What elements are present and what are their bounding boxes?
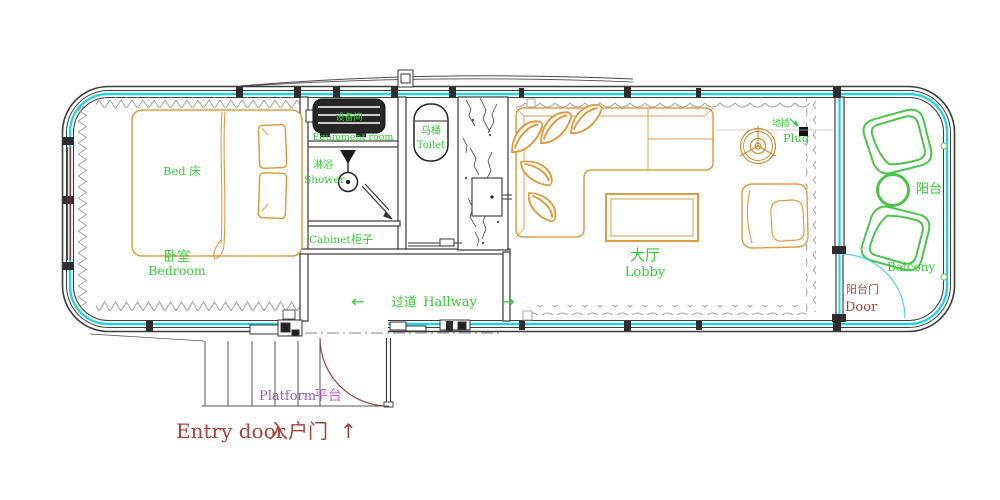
ceiling-fan: [740, 126, 776, 164]
balcony-table: [878, 175, 909, 206]
wall-anchor-dot: [941, 143, 947, 149]
armchair: [742, 184, 808, 248]
bed: [132, 110, 302, 259]
label-bed: Bed 床: [163, 164, 201, 178]
label-entry-door-zh: 入户门: [268, 419, 328, 443]
label-equipment-zh: 设备间: [335, 111, 362, 123]
wall-shower-south: [308, 221, 400, 226]
label-cabinet-en: Cabinet: [309, 234, 351, 246]
coffee-table: [606, 194, 698, 241]
label-toilet-en: Toilet: [417, 140, 445, 151]
hallway-arrow-right: →: [501, 292, 514, 311]
label-bedroom-en: Bedroom: [148, 263, 206, 278]
label-lobby-zh: 大厅: [630, 246, 660, 264]
shower-door: [362, 184, 392, 219]
floor-plan-canvas: Bed 床 卧室 Bedroom 设备间 Equipment room 淋浴 S…: [0, 0, 1000, 500]
wall-anchor-dot: [941, 274, 947, 280]
label-plug-en: Plug: [783, 131, 810, 145]
floor-plan-drawing: Bed 床 卧室 Bedroom 设备间 Equipment room 淋浴 S…: [0, 0, 1000, 500]
entry-opening: [300, 314, 388, 334]
platform-deck: [90, 334, 389, 406]
hallway-arrow-left: ←: [351, 292, 364, 311]
label-plug-zh: 地插: [772, 117, 790, 129]
balcony-chair-top: [861, 107, 934, 177]
label-shower-en: Shower: [304, 174, 345, 186]
label-platform-zh: 平台: [314, 388, 342, 404]
label-balcony-door-en: Door: [845, 300, 878, 315]
wall-toilet-west: [398, 97, 406, 251]
toilet-sliding-door: [408, 239, 462, 246]
label-hallway-zh: 过道: [391, 294, 417, 309]
label-balcony-door-zh: 阳台门: [846, 282, 879, 296]
marble-wall: [458, 97, 508, 250]
label-shower-zh: 淋浴: [313, 158, 333, 171]
roof-vent: [398, 70, 413, 87]
roof-overhang-lines: [240, 76, 633, 86]
label-balcony-en: Balcony: [887, 260, 935, 274]
entry-door-arrow-up: ↑: [340, 419, 357, 443]
label-balcony-zh: 阳台: [916, 182, 942, 197]
label-platform-en: Platform: [259, 389, 316, 404]
label-equipment-en: Equipment room: [313, 132, 394, 143]
label-toilet-zh: 马桶: [421, 124, 441, 137]
label-lobby-en: Lobby: [625, 265, 666, 280]
label-hallway-en: Hallway: [423, 295, 477, 310]
label-cabinet-zh: 柜子: [351, 233, 373, 246]
